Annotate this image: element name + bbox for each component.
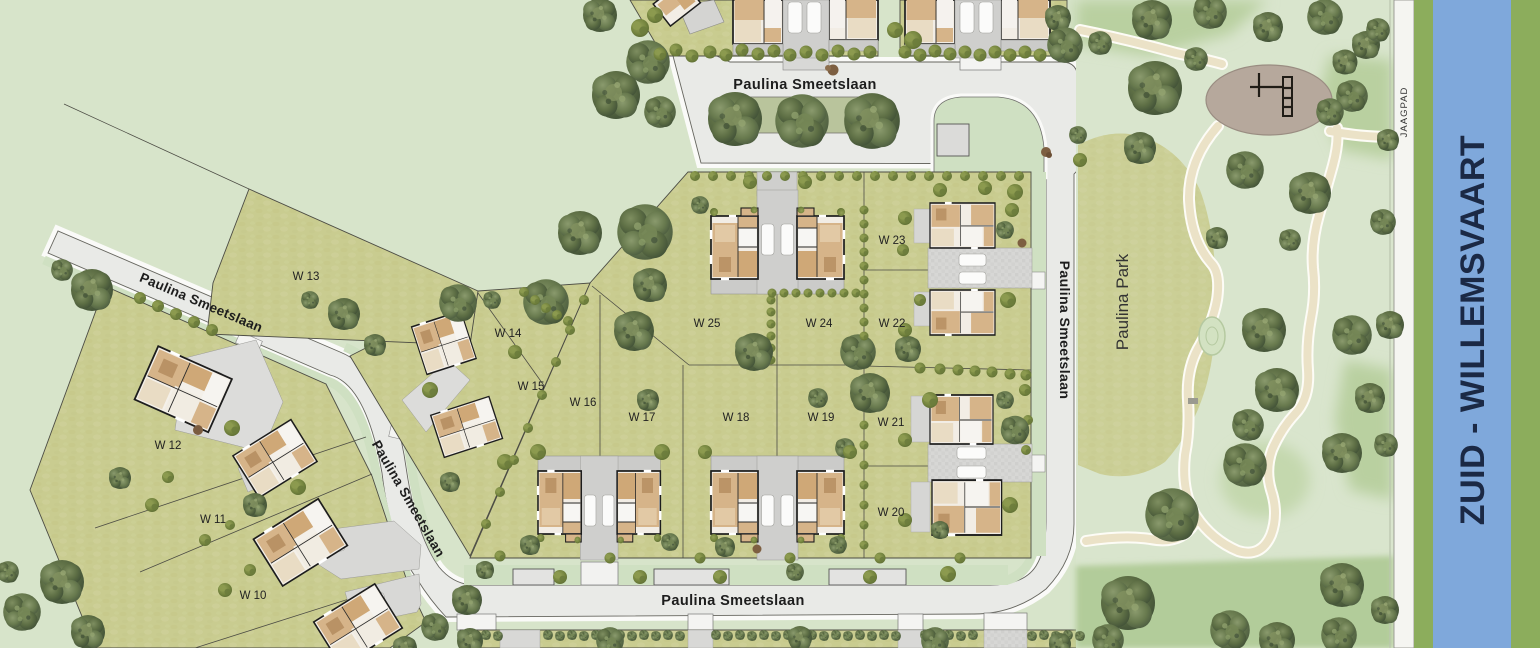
svg-text:W 18: W 18 xyxy=(723,412,750,424)
svg-text:ZUID - WILLEMSVAART: ZUID - WILLEMSVAART xyxy=(1454,135,1492,525)
svg-text:W 13: W 13 xyxy=(293,271,320,283)
svg-text:JAAGPAD: JAAGPAD xyxy=(1399,87,1410,138)
svg-text:Paulina Smeetslaan: Paulina Smeetslaan xyxy=(733,77,876,93)
svg-text:W 23: W 23 xyxy=(879,235,906,247)
svg-text:W 25: W 25 xyxy=(694,318,721,330)
svg-text:Paulina Park: Paulina Park xyxy=(1113,253,1132,350)
svg-text:W 24: W 24 xyxy=(806,318,833,330)
svg-text:W 19: W 19 xyxy=(808,412,835,424)
svg-text:W 22: W 22 xyxy=(879,318,906,330)
svg-text:W 11: W 11 xyxy=(200,514,226,526)
svg-text:W 14: W 14 xyxy=(495,328,522,340)
svg-text:W 21: W 21 xyxy=(878,417,905,429)
svg-text:Paulina Smeetslaan: Paulina Smeetslaan xyxy=(661,593,804,609)
svg-text:W 12: W 12 xyxy=(155,440,182,452)
svg-text:W 15: W 15 xyxy=(518,381,545,393)
svg-text:Paulina Smeetslaan: Paulina Smeetslaan xyxy=(1057,261,1073,400)
svg-text:W 20: W 20 xyxy=(878,507,905,519)
svg-text:W 10: W 10 xyxy=(240,590,267,602)
svg-text:W 17: W 17 xyxy=(629,412,656,424)
svg-text:W 16: W 16 xyxy=(570,397,597,409)
